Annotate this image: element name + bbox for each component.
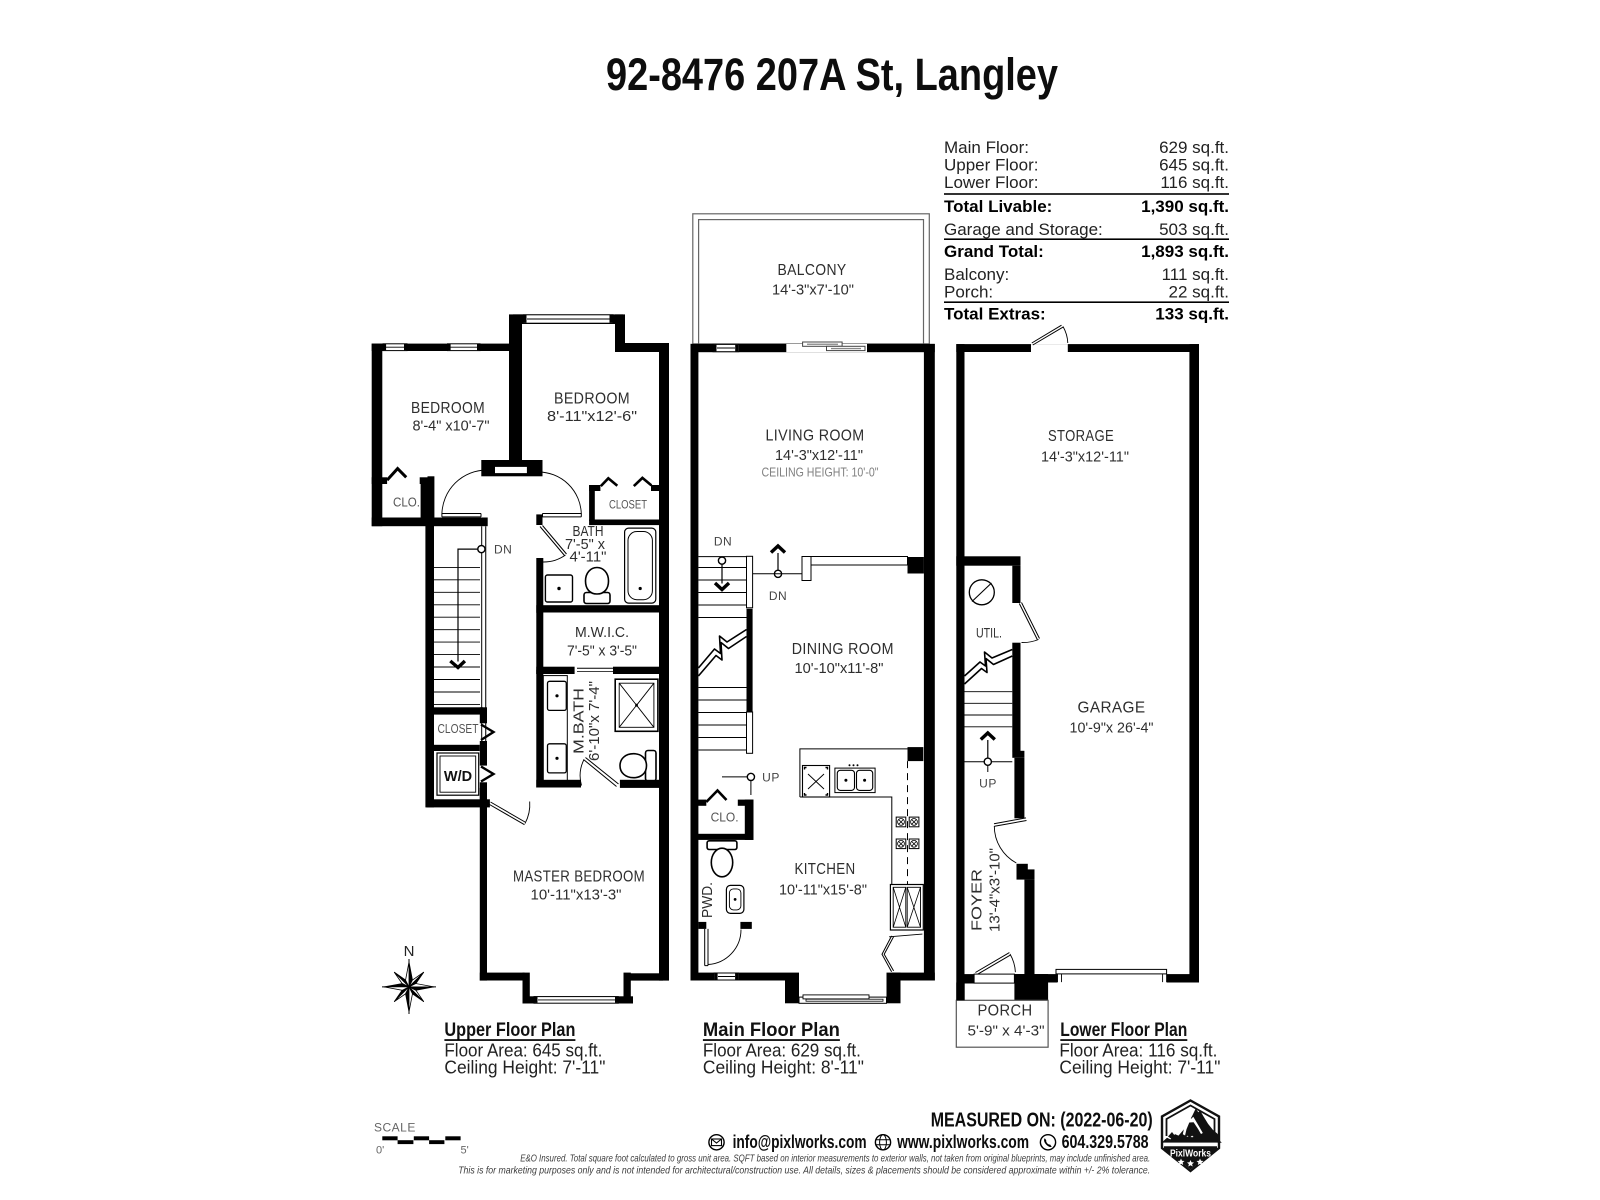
svg-text:7'-5" x 3'-5": 7'-5" x 3'-5" bbox=[567, 644, 637, 660]
svg-text:Grand Total:: Grand Total: bbox=[944, 242, 1044, 261]
svg-text:CLO.: CLO. bbox=[711, 811, 739, 825]
svg-text:133 sq.ft.: 133 sq.ft. bbox=[1155, 305, 1229, 324]
svg-text:M.BATH: M.BATH bbox=[572, 688, 588, 754]
svg-text:BEDROOM: BEDROOM bbox=[411, 400, 485, 417]
svg-text:629 sq.ft.: 629 sq.ft. bbox=[1159, 138, 1229, 157]
svg-text:116 sq.ft.: 116 sq.ft. bbox=[1160, 173, 1229, 192]
svg-text:Lower Floor Plan: Lower Floor Plan bbox=[1060, 1019, 1187, 1041]
svg-text:10'-9"x 26'-4": 10'-9"x 26'-4" bbox=[1070, 721, 1154, 737]
svg-text:13'-4"x3'-10": 13'-4"x3'-10" bbox=[988, 848, 1004, 932]
svg-text:CEILING HEIGHT: 10'-0": CEILING HEIGHT: 10'-0" bbox=[762, 466, 879, 480]
svg-text:14'-3"x7'-10": 14'-3"x7'-10" bbox=[772, 283, 854, 299]
svg-text:GARAGE: GARAGE bbox=[1078, 700, 1146, 717]
svg-text:14'-3"x12'-11": 14'-3"x12'-11" bbox=[775, 448, 863, 464]
svg-text:604.329.5788: 604.329.5788 bbox=[1062, 1132, 1149, 1152]
svg-text:SCALE: SCALE bbox=[374, 1121, 416, 1135]
svg-text:M.W.I.C.: M.W.I.C. bbox=[575, 625, 629, 641]
svg-text:MEASURED ON: (2022-06-20): MEASURED ON: (2022-06-20) bbox=[931, 1110, 1153, 1132]
svg-text:UP: UP bbox=[762, 771, 780, 785]
svg-text:Balcony:: Balcony: bbox=[944, 265, 1009, 284]
svg-text:FOYER: FOYER bbox=[970, 869, 986, 931]
svg-text:5': 5' bbox=[461, 1145, 469, 1157]
svg-text:MASTER BEDROOM: MASTER BEDROOM bbox=[513, 869, 645, 886]
svg-text:E&O Insured. Total square foo: E&O Insured. Total square foot calculate… bbox=[520, 1152, 1150, 1164]
svg-text:Ceiling Height: 7'-11": Ceiling Height: 7'-11" bbox=[1059, 1058, 1220, 1078]
svg-text:92-8476 207A St, Langley: 92-8476 207A St, Langley bbox=[606, 49, 1058, 100]
svg-text:CLOSET: CLOSET bbox=[609, 500, 647, 512]
svg-text:Total Extras:: Total Extras: bbox=[944, 305, 1046, 324]
svg-text:5'-9" x 4'-3": 5'-9" x 4'-3" bbox=[968, 1024, 1045, 1040]
svg-text:DINING ROOM: DINING ROOM bbox=[792, 641, 894, 658]
svg-text:This is for marketing purposes: This is for marketing purposes only and … bbox=[458, 1164, 1150, 1176]
svg-text:Upper Floor:: Upper Floor: bbox=[944, 156, 1038, 175]
svg-text:Garage and Storage:: Garage and Storage: bbox=[944, 220, 1103, 239]
svg-text:Ceiling Height: 8'-11": Ceiling Height: 8'-11" bbox=[703, 1058, 864, 1078]
svg-text:1,390 sq.ft.: 1,390 sq.ft. bbox=[1141, 197, 1229, 216]
svg-text:KITCHEN: KITCHEN bbox=[795, 861, 856, 878]
svg-text:Main Floor:: Main Floor: bbox=[944, 138, 1029, 157]
svg-text:8'-4" x10'-7": 8'-4" x10'-7" bbox=[413, 419, 490, 435]
svg-text:STORAGE: STORAGE bbox=[1048, 428, 1114, 445]
svg-text:Upper Floor Plan: Upper Floor Plan bbox=[444, 1019, 575, 1041]
svg-text:645 sq.ft.: 645 sq.ft. bbox=[1159, 156, 1229, 175]
svg-text:14'-3"x12'-11": 14'-3"x12'-11" bbox=[1041, 450, 1129, 466]
svg-text:Main Floor Plan: Main Floor Plan bbox=[703, 1019, 840, 1041]
svg-text:10'-10"x11'-8": 10'-10"x11'-8" bbox=[795, 661, 884, 677]
svg-text:22 sq.ft.: 22 sq.ft. bbox=[1169, 283, 1229, 302]
svg-text:DN: DN bbox=[769, 589, 787, 603]
svg-text:UP: UP bbox=[979, 777, 997, 791]
svg-text:BEDROOM: BEDROOM bbox=[554, 391, 630, 408]
svg-text:1,893 sq.ft.: 1,893 sq.ft. bbox=[1141, 242, 1229, 261]
svg-text:Porch:: Porch: bbox=[944, 283, 993, 302]
svg-text:4'-11": 4'-11" bbox=[570, 550, 607, 566]
svg-text:DN: DN bbox=[494, 543, 512, 557]
svg-text:6'-10"x 7'-4": 6'-10"x 7'-4" bbox=[587, 681, 603, 761]
svg-text:0': 0' bbox=[376, 1145, 384, 1157]
svg-text:info@pixlworks.com: info@pixlworks.com bbox=[733, 1132, 867, 1152]
svg-text:Lower Floor:: Lower Floor: bbox=[944, 173, 1038, 192]
svg-text:8'-11"x12'-6": 8'-11"x12'-6" bbox=[547, 409, 637, 425]
svg-text:PixlWorks: PixlWorks bbox=[1170, 1149, 1211, 1160]
svg-text:CLOSET: CLOSET bbox=[438, 722, 479, 736]
svg-text:PWD.: PWD. bbox=[700, 882, 716, 918]
svg-text:10'-11"x13'-3": 10'-11"x13'-3" bbox=[531, 888, 622, 904]
svg-text:LIVING ROOM: LIVING ROOM bbox=[766, 428, 865, 445]
svg-text:BALCONY: BALCONY bbox=[778, 262, 847, 279]
svg-text:111 sq.ft.: 111 sq.ft. bbox=[1162, 265, 1229, 284]
svg-text:CLO.: CLO. bbox=[393, 496, 420, 510]
svg-text:10'-11"x15'-8": 10'-11"x15'-8" bbox=[779, 883, 867, 899]
svg-text:Ceiling Height: 7'-11": Ceiling Height: 7'-11" bbox=[444, 1058, 605, 1078]
svg-text:503 sq.ft.: 503 sq.ft. bbox=[1159, 220, 1229, 239]
svg-text:PORCH: PORCH bbox=[978, 1003, 1033, 1020]
svg-text:UTIL.: UTIL. bbox=[976, 626, 1002, 641]
svg-text:DN: DN bbox=[714, 535, 732, 549]
svg-text:W/D: W/D bbox=[444, 769, 472, 785]
svg-text:www.pixlworks.com: www.pixlworks.com bbox=[896, 1132, 1029, 1152]
svg-text:N: N bbox=[404, 943, 415, 960]
svg-text:Total Livable:: Total Livable: bbox=[944, 197, 1052, 216]
